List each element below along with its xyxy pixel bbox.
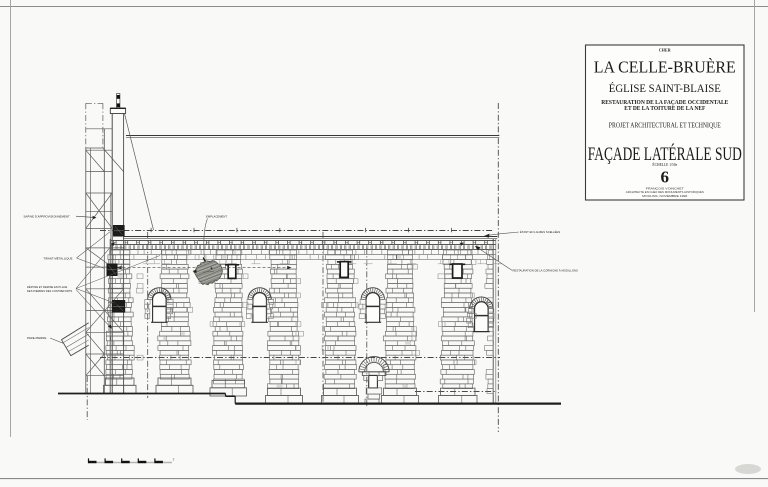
svg-text:ÉGLISE SAINT-BLAISE: ÉGLISE SAINT-BLAISE — [609, 81, 721, 95]
svg-text:SAPINE D’APPROVISIONNEMENT: SAPINE D’APPROVISIONNEMENT — [24, 214, 70, 218]
svg-text:ET DE LA TOITURE DE LA NEF: ET DE LA TOITURE DE LA NEF — [624, 105, 705, 112]
svg-text:LA CELLE-BRUÈRE: LA CELLE-BRUÈRE — [594, 58, 736, 77]
svg-text:ÉCHELLE 1/50e: ÉCHELLE 1/50e — [652, 162, 677, 167]
svg-text:PARE-PIERRE: PARE-PIERRE — [27, 336, 46, 340]
svg-text:CHER: CHER — [659, 48, 671, 53]
svg-text:7: 7 — [173, 458, 175, 462]
svg-text:TIRANT MÉTALLIQUE: TIRANT MÉTALLIQUE — [43, 256, 72, 261]
svg-text:PROJET ARCHITECTURAL ET TEC: PROJET ARCHITECTURAL ET TECHNIQUE — [609, 123, 721, 130]
svg-text:6: 6 — [661, 168, 670, 187]
svg-text:FAÇADE LATÉRALE SUD: FAÇADE LATÉRALE SUD — [588, 143, 742, 165]
